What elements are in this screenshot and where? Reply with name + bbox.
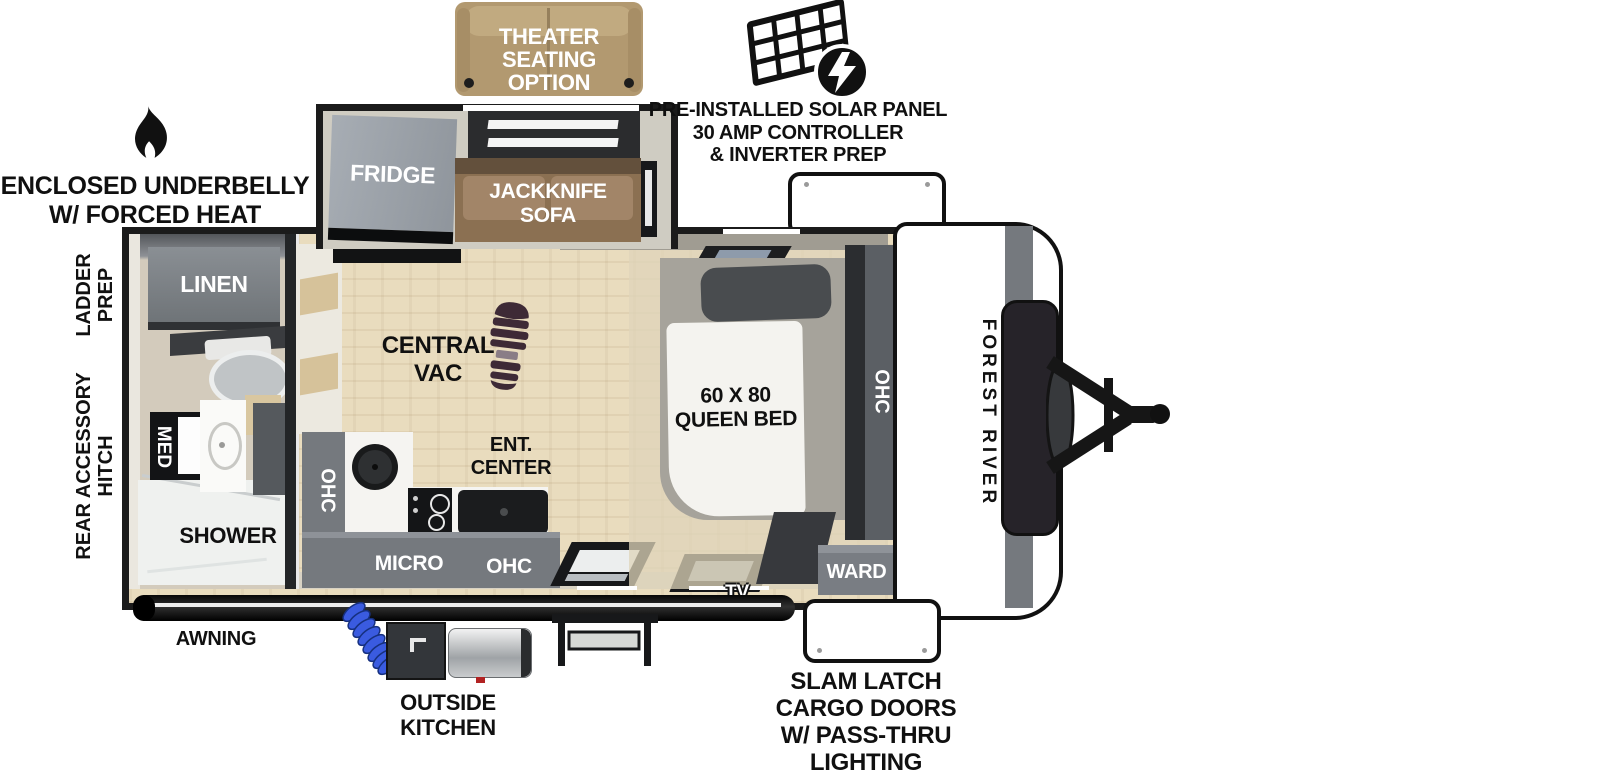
screw-dot [922,648,927,653]
kitchen-lower-cabinet: MICRO OHC [302,532,560,588]
theater-seating-label: THEATER SEATING OPTION [455,26,643,95]
outside-kitchen-label: OUTSIDE KITCHEN [378,690,518,741]
queen-bed-label: 60 X 80 QUEEN BED [667,383,804,434]
ent-center-unit [458,490,548,534]
cargo-door-bottom [803,599,941,663]
hitch-tongue [1046,350,1174,480]
linen-cabinet: LINEN [148,247,280,330]
sink-drain [372,464,378,470]
burner [430,494,450,514]
door-sill [565,574,628,581]
bed-pillow [700,264,832,323]
rear-hitch-label: REAR ACCESSORY HITCH [73,371,117,561]
sink-bowl [208,422,242,470]
wall-window-slit [723,229,800,234]
ward-label: WARD [818,561,895,584]
slam-latch-label: SLAM LATCH CARGO DOORS W/ PASS-THRU LIGH… [746,668,986,773]
awning-highlight [147,603,781,607]
pantry-shelves [296,244,342,434]
bath-tall-cabinet [253,403,285,495]
shelf [300,273,338,316]
awning-bar [133,595,795,621]
solar-panel-icon [745,0,870,102]
solar-label: PRE-INSTALLED SOLAR PANEL 30 AMP CONTROL… [648,99,948,167]
slide-side-window [641,161,657,237]
vanity [200,400,246,492]
ent-center-label: ENT. CENTER [461,434,561,480]
outside-griddle [448,628,532,678]
fridge-label: FRIDGE [330,159,456,190]
knob [413,508,418,513]
shelf [300,353,338,396]
wall-window-slit [577,586,637,590]
entry-steps [552,612,658,670]
kitchen-sink [352,444,398,490]
med-cabinet: MED [150,412,204,480]
window-slat [487,120,618,129]
screw-dot [804,182,809,187]
knob [413,496,418,501]
slide-window-band [468,111,640,160]
shower-label: SHOWER [158,523,298,548]
burner [428,514,445,531]
jackknife-sofa-label: JACKKNIFE SOFA [463,180,633,228]
micro-label: MICRO [359,552,459,576]
brand-label: FOREST RIVER [977,293,999,533]
trailer-main-body: LINEN MED SHOWER CENTRAL VAC [122,227,909,610]
linen-label: LINEN [148,271,280,297]
sofa-back [455,158,641,174]
floorplan-canvas: LINEN MED SHOWER CENTRAL VAC [0,0,1600,773]
screw-dot [925,182,930,187]
bedroom-ohc-label: OHC [870,357,893,427]
griddle-end-cap [521,629,531,677]
knob [500,508,508,516]
underbelly-label: ENCLOSED UNDERBELLY W/ FORCED HEAT [0,172,310,229]
fridge: FRIDGE [328,115,457,244]
slide-out: FRIDGE JACKKNIFE SOFA [316,104,678,249]
screw-dot [817,648,822,653]
kitchen-ohc-label: OHC [316,456,339,526]
outside-kitchen-panel [386,622,446,680]
cooktop [408,488,452,532]
jackknife-sofa: JACKKNIFE SOFA [455,158,641,242]
griddle-valve [476,677,485,683]
window-slat [645,170,652,226]
awning-end-cap [133,595,155,621]
awning-label: AWNING [168,628,264,651]
med-label: MED [152,420,174,474]
flame-icon [126,100,174,166]
window-slat [487,138,618,147]
med-mirror [178,417,200,474]
theater-sofa: THEATER SEATING OPTION [455,2,643,96]
bootprint-icon [480,298,537,395]
ladder-prep-label: LADDER PREP [73,235,117,355]
wardrobe: WARD [818,545,895,595]
counter-ohc-label: OHC [469,555,549,579]
faucet-icon [410,638,414,652]
sink-drain [219,442,225,448]
bed-mattress: 60 X 80 QUEEN BED [666,321,805,517]
